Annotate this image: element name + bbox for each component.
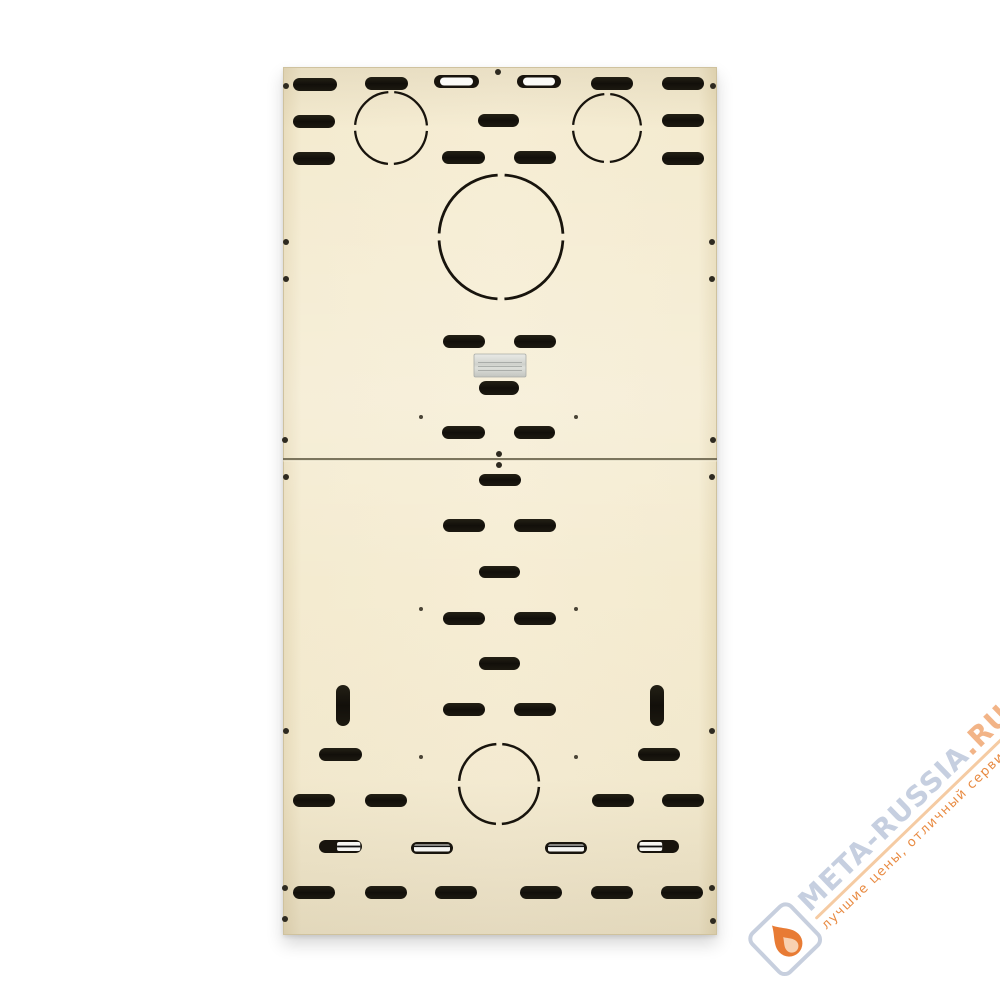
product-photo: META-RUSSIA.RU лучшие цены, отличный сер…	[0, 0, 1000, 1000]
panel-cutouts	[0, 0, 1000, 1000]
